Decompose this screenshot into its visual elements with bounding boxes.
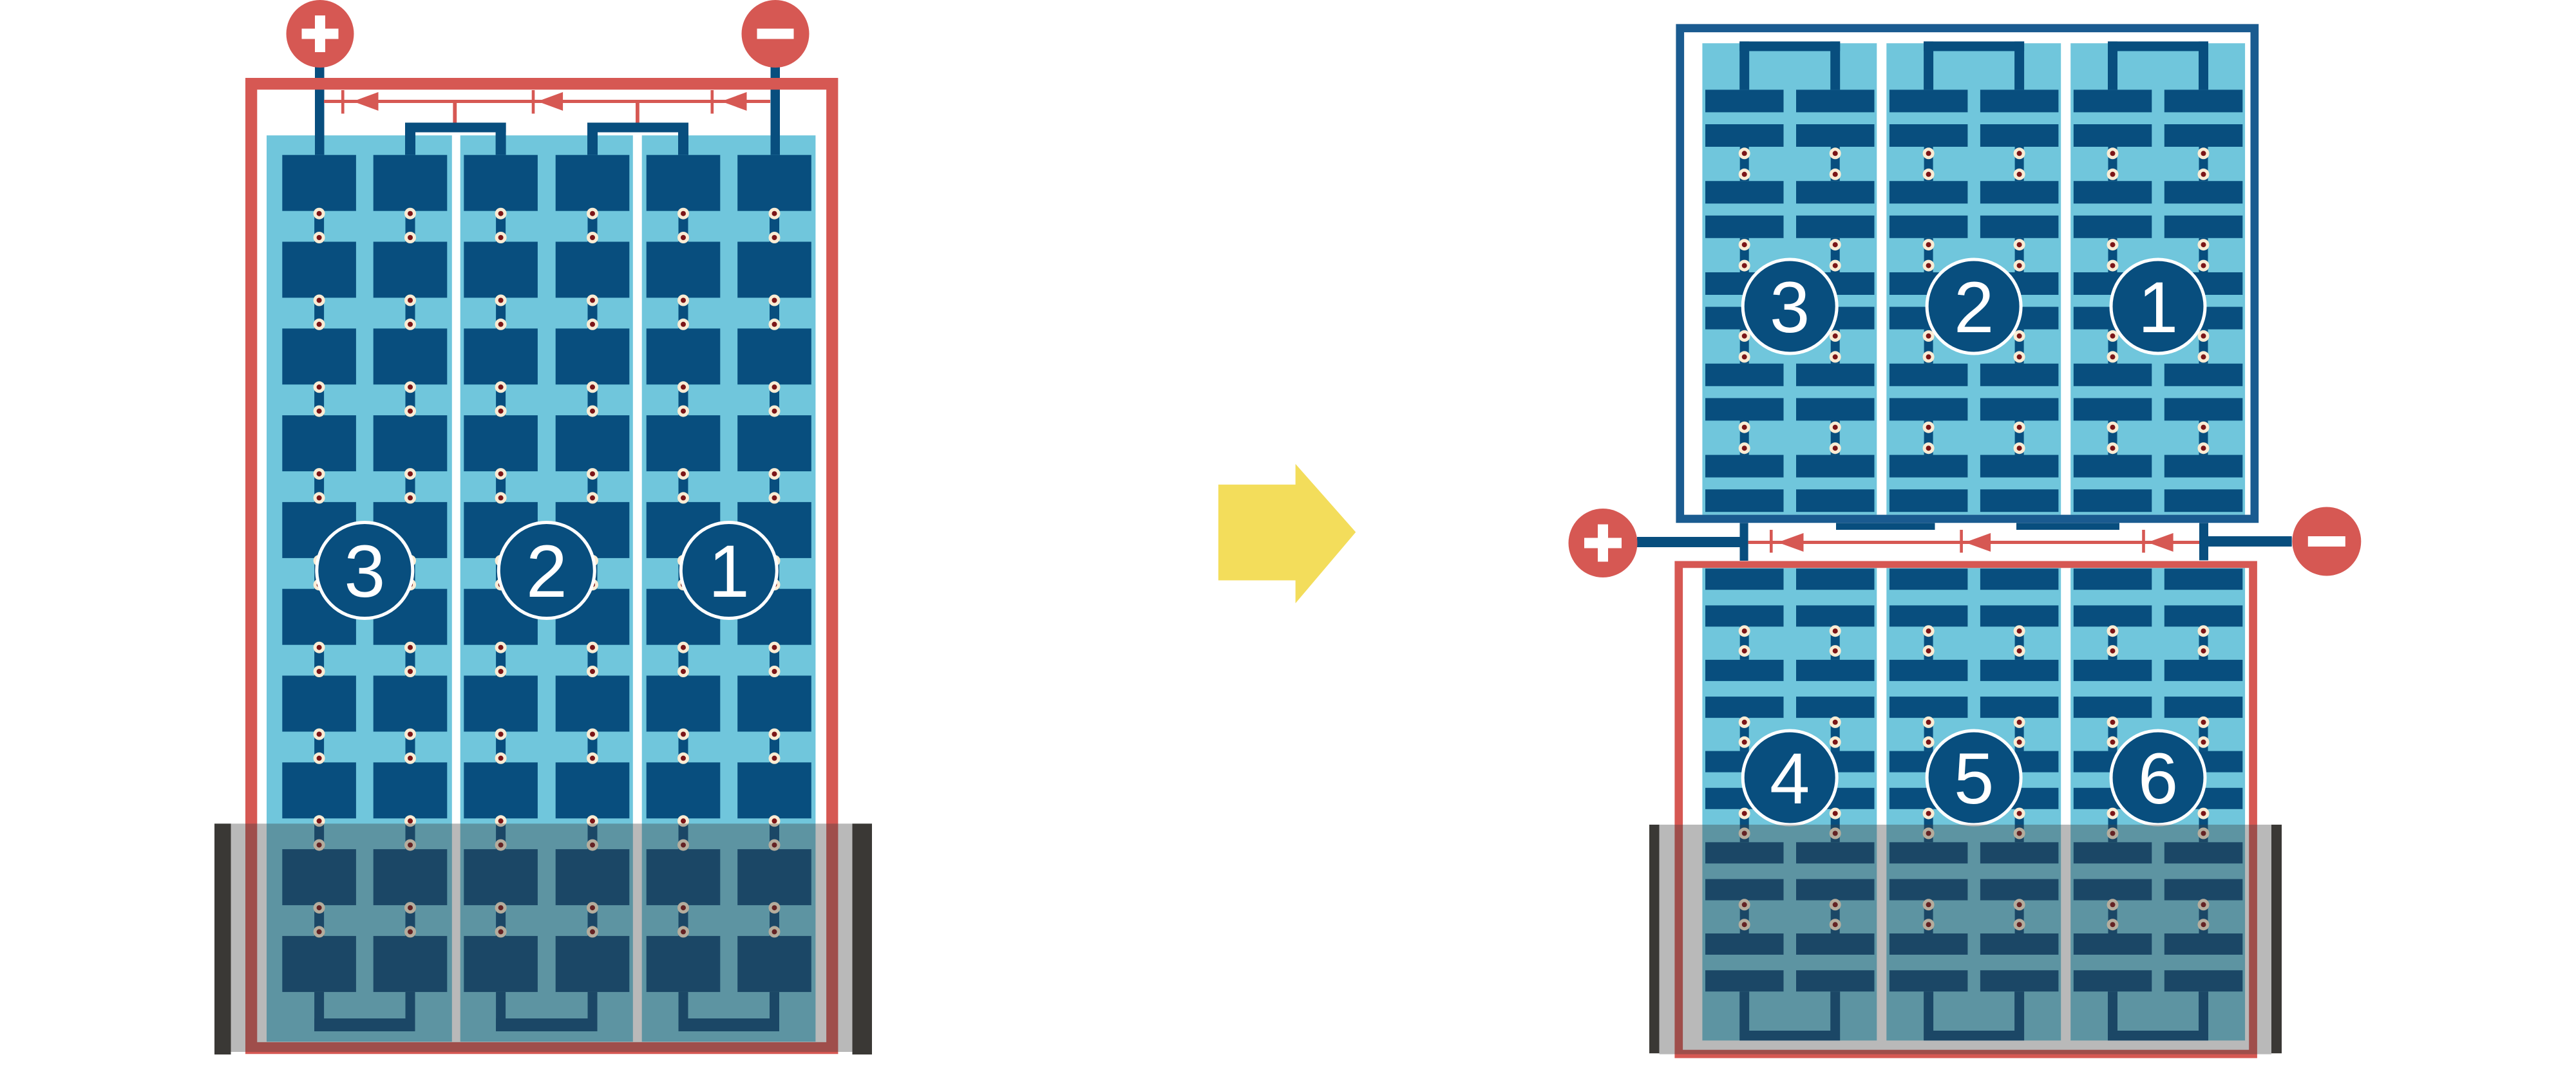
svg-text:5: 5 xyxy=(1954,738,1994,819)
svg-text:4: 4 xyxy=(1770,738,1810,819)
svg-text:3: 3 xyxy=(1770,267,1810,348)
svg-text:1: 1 xyxy=(708,530,750,613)
svg-text:2: 2 xyxy=(526,530,567,613)
svg-text:6: 6 xyxy=(2138,738,2178,819)
svg-text:1: 1 xyxy=(2138,267,2178,348)
svg-text:2: 2 xyxy=(1954,267,1994,348)
svg-text:3: 3 xyxy=(344,530,385,613)
